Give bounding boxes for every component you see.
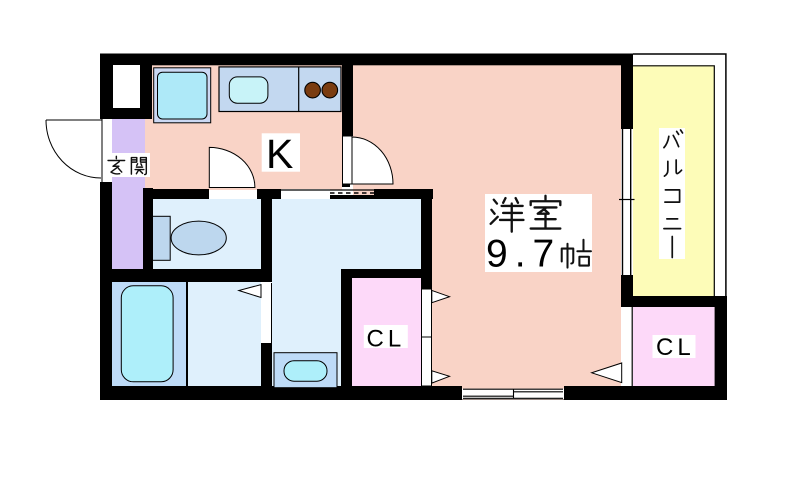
svg-text:9.7: 9.7 bbox=[486, 233, 561, 276]
svg-text:CL: CL bbox=[367, 326, 406, 353]
svg-text:CL: CL bbox=[656, 334, 695, 361]
svg-text:K: K bbox=[266, 131, 293, 177]
